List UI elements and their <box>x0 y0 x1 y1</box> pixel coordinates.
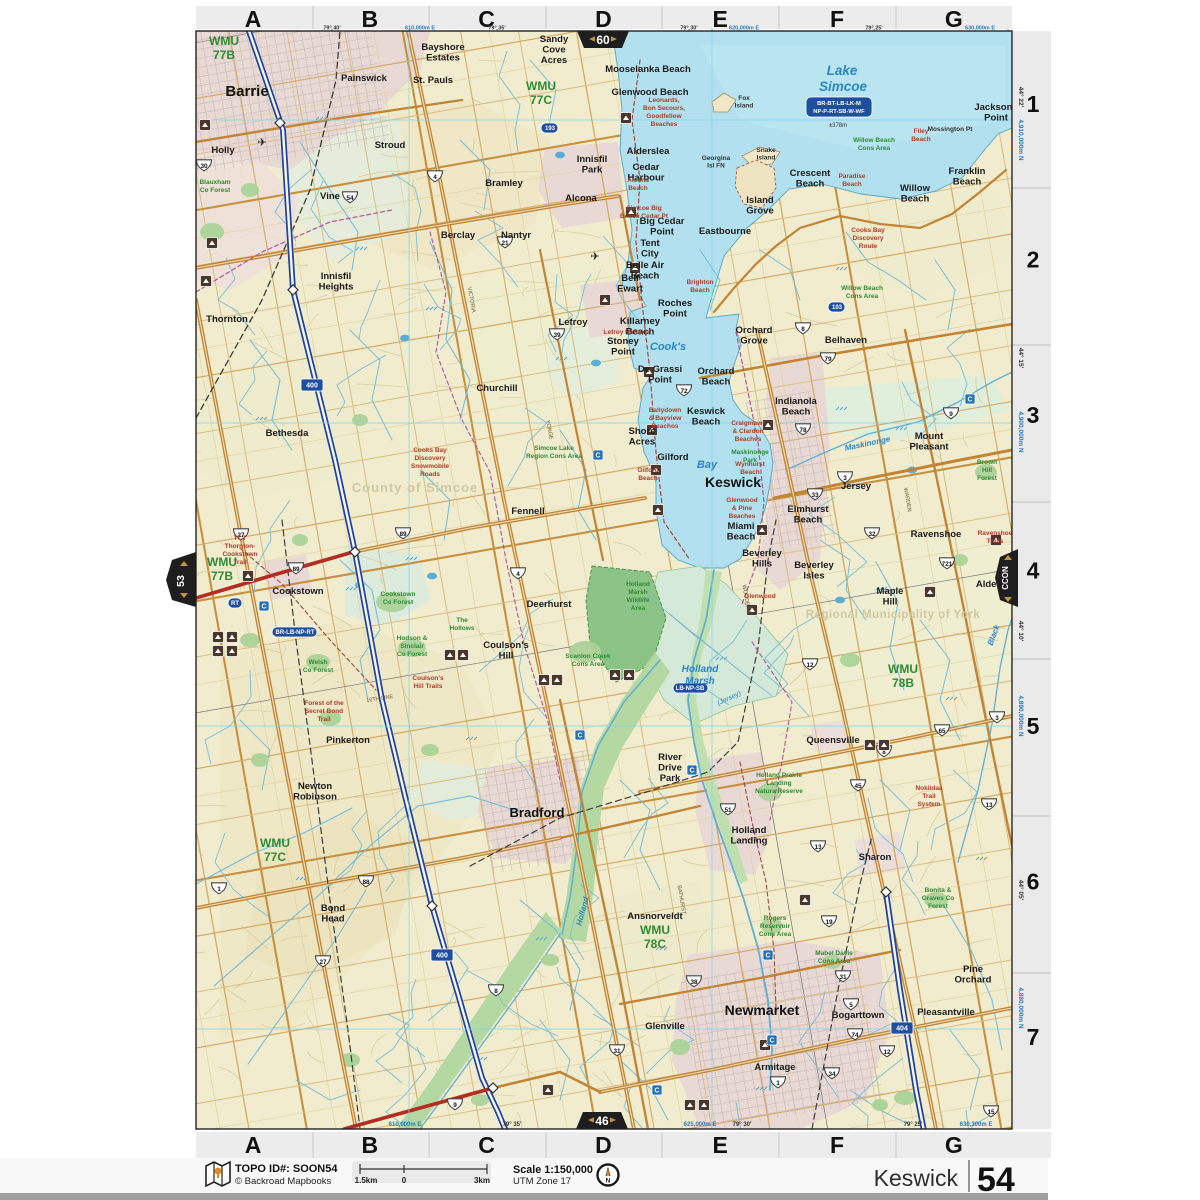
svg-text:C: C <box>769 1038 774 1045</box>
svg-text:1: 1 <box>217 886 221 893</box>
svg-text:Brown: Brown <box>977 459 997 466</box>
svg-text:78C: 78C <box>644 937 666 951</box>
svg-text:1: 1 <box>1027 91 1040 117</box>
svg-text:Pleasantville: Pleasantville <box>917 1007 975 1018</box>
svg-text:Co Forest: Co Forest <box>397 651 428 658</box>
svg-text:Region Cons Area: Region Cons Area <box>526 453 582 460</box>
svg-text:Mabel Davis: Mabel Davis <box>815 950 853 957</box>
svg-text:Acres: Acres <box>629 437 655 448</box>
svg-text:Drive: Drive <box>658 763 682 774</box>
svg-text:13: 13 <box>814 844 822 851</box>
svg-text:15: 15 <box>987 1109 995 1116</box>
svg-text:Cookstown: Cookstown <box>272 586 323 597</box>
svg-text:Isl FN: Isl FN <box>707 163 725 170</box>
svg-text:Filey: Filey <box>914 128 929 135</box>
svg-text:Beverley: Beverley <box>742 548 782 559</box>
svg-text:44° 05': 44° 05' <box>1017 880 1025 901</box>
svg-text:St. Pauls: St. Pauls <box>413 75 453 86</box>
svg-text:Sandy: Sandy <box>540 34 569 45</box>
svg-text:44° 10': 44° 10' <box>1017 621 1025 642</box>
svg-text:4: 4 <box>516 571 520 578</box>
svg-text:78B: 78B <box>892 676 914 690</box>
svg-text:Glenwood: Glenwood <box>726 497 757 504</box>
svg-text:Natura Reserve: Natura Reserve <box>755 788 803 795</box>
svg-text:Head: Head <box>321 914 344 925</box>
svg-text:Holland: Holland <box>626 581 650 588</box>
svg-text:Hill Trails: Hill Trails <box>414 683 443 690</box>
svg-text:Cove: Cove <box>542 45 565 56</box>
svg-text:Lefroy: Lefroy <box>558 317 588 328</box>
svg-text:721: 721 <box>942 561 953 568</box>
svg-text:Beach: Beach <box>740 469 760 476</box>
svg-text:WMU: WMU <box>209 34 239 48</box>
svg-text:Alderslea: Alderslea <box>627 146 670 157</box>
svg-text:Cons Area: Cons Area <box>818 958 851 965</box>
svg-text:Point: Point <box>663 309 688 320</box>
svg-text:Snake: Snake <box>756 147 776 154</box>
svg-text:Co Forest: Co Forest <box>200 187 231 194</box>
svg-text:Cons Area: Cons Area <box>572 661 605 668</box>
svg-text:Painswick: Painswick <box>341 73 388 84</box>
svg-text:2: 2 <box>1027 247 1040 273</box>
svg-text:Jacksons: Jacksons <box>974 102 1017 113</box>
svg-text:& Pine: & Pine <box>732 505 753 512</box>
svg-text:Nantyr: Nantyr <box>501 230 531 241</box>
svg-text:Hollows: Hollows <box>450 625 475 632</box>
svg-text:Beach: Beach <box>702 377 731 388</box>
svg-text:Beverley: Beverley <box>794 560 834 571</box>
svg-text:& Bayview: & Bayview <box>649 415 682 422</box>
svg-text:Beach: Beach <box>911 136 931 143</box>
svg-text:UTM Zone 17: UTM Zone 17 <box>513 1176 571 1187</box>
svg-text:Welsh: Welsh <box>308 659 327 666</box>
svg-text:74: 74 <box>851 1032 859 1039</box>
svg-text:31: 31 <box>613 1048 621 1055</box>
svg-text:Eastbourne: Eastbourne <box>699 226 751 237</box>
svg-text:Cons Area: Cons Area <box>858 145 891 152</box>
svg-text:Cedar: Cedar <box>633 162 660 173</box>
svg-text:Bon Secours,: Bon Secours, <box>643 105 685 112</box>
svg-text:Beach: Beach <box>901 194 930 205</box>
svg-text:Beaches: Beaches <box>651 121 678 128</box>
svg-text:Point: Point <box>611 347 636 358</box>
svg-text:4,900,000m N: 4,900,000m N <box>1017 411 1024 453</box>
svg-text:Keswick: Keswick <box>687 406 726 417</box>
svg-text:Holland: Holland <box>682 664 720 675</box>
svg-text:Queensville: Queensville <box>806 735 859 746</box>
svg-text:Coulson's: Coulson's <box>483 640 529 651</box>
svg-text:Bogarttown: Bogarttown <box>832 1010 885 1021</box>
svg-text:Co Forest: Co Forest <box>383 599 414 606</box>
svg-text:39: 39 <box>553 332 561 339</box>
svg-text:Sinclair: Sinclair <box>400 643 424 650</box>
svg-text:Willow Beach: Willow Beach <box>841 285 883 292</box>
svg-text:Discovery: Discovery <box>414 455 445 462</box>
svg-text:Hill: Hill <box>883 597 898 608</box>
svg-text:Mossington Pt: Mossington Pt <box>928 126 974 133</box>
svg-text:Keswick: Keswick <box>705 474 761 490</box>
svg-text:Coulson's: Coulson's <box>412 675 444 682</box>
svg-text:Leonards,: Leonards, <box>648 97 679 104</box>
svg-text:79° 30': 79° 30' <box>733 1122 752 1128</box>
svg-text:Beachos: Beachos <box>651 423 678 430</box>
svg-text:Estates: Estates <box>426 53 460 64</box>
svg-text:Bethesda: Bethesda <box>266 428 309 439</box>
svg-text:WMU: WMU <box>640 923 670 937</box>
svg-text:Forest: Forest <box>928 903 949 910</box>
svg-text:Acres: Acres <box>541 55 567 66</box>
svg-text:Killarney: Killarney <box>620 316 661 327</box>
svg-text:Churchill: Churchill <box>476 383 517 394</box>
svg-text:& Clardon: & Clardon <box>732 428 763 435</box>
svg-text:Gilford: Gilford <box>637 467 658 474</box>
svg-text:Beach: Beach <box>842 181 862 188</box>
svg-text:Cook's: Cook's <box>650 341 686 353</box>
svg-text:Island: Island <box>735 103 754 110</box>
svg-text:Stroud: Stroud <box>375 140 406 151</box>
svg-text:A: A <box>245 1132 262 1158</box>
svg-text:7: 7 <box>1027 1024 1040 1050</box>
svg-text:51: 51 <box>724 807 732 814</box>
svg-text:Fox: Fox <box>738 95 750 102</box>
svg-text:Jersey: Jersey <box>841 481 872 492</box>
svg-text:Forest: Forest <box>977 475 998 482</box>
svg-text:Isles: Isles <box>803 571 824 582</box>
svg-text:89: 89 <box>399 531 407 538</box>
svg-text:Park: Park <box>582 165 603 176</box>
svg-text:Nokiidaa: Nokiidaa <box>915 785 942 792</box>
svg-text:8: 8 <box>801 326 805 333</box>
svg-text:WMU: WMU <box>526 79 556 93</box>
svg-text:Park: Park <box>660 773 681 784</box>
svg-text:Franklin: Franklin <box>949 166 986 177</box>
svg-text:Thornton-: Thornton- <box>225 543 256 550</box>
svg-text:Pleasant: Pleasant <box>909 442 949 453</box>
svg-text:5: 5 <box>1027 713 1040 739</box>
svg-text:River: River <box>658 752 682 763</box>
svg-text:Innisfil: Innisfil <box>321 271 352 282</box>
svg-text:77C: 77C <box>264 850 286 864</box>
svg-text:4: 4 <box>433 174 437 181</box>
svg-text:Hill: Hill <box>982 467 992 474</box>
svg-text:3km: 3km <box>474 1176 490 1185</box>
svg-text:Holland: Holland <box>732 825 767 836</box>
svg-text:Graves Co: Graves Co <box>922 895 955 902</box>
svg-text:A: A <box>245 6 262 32</box>
svg-text:Bramley: Bramley <box>485 178 523 189</box>
svg-text:13: 13 <box>985 802 993 809</box>
svg-text:±378m: ±378m <box>829 123 847 129</box>
svg-text:Cons Area: Cons Area <box>759 931 792 938</box>
svg-text:Tent: Tent <box>640 238 660 249</box>
svg-text:TCT: TCT <box>234 535 247 542</box>
svg-text:Cookstown: Cookstown <box>222 551 257 558</box>
svg-text:Lefroy Harbour: Lefroy Harbour <box>604 329 651 336</box>
svg-text:610,000m E: 610,000m E <box>389 1122 422 1128</box>
svg-text:1.5km: 1.5km <box>355 1176 378 1185</box>
svg-text:54: 54 <box>346 195 354 202</box>
svg-text:Hills: Hills <box>752 559 772 570</box>
svg-text:65: 65 <box>938 728 946 735</box>
svg-text:Alcona: Alcona <box>627 177 649 184</box>
svg-text:Beach Cedar Pt: Beach Cedar Pt <box>620 213 669 220</box>
svg-text:Island: Island <box>746 195 774 206</box>
svg-text:BR-BT-LB-LK-M: BR-BT-LB-LK-M <box>817 101 861 107</box>
svg-text:78: 78 <box>799 427 807 434</box>
svg-text:4,880,000m N: 4,880,000m N <box>1017 987 1024 1029</box>
svg-text:Newmarket: Newmarket <box>725 1002 800 1018</box>
svg-text:Heights: Heights <box>319 282 354 293</box>
svg-text:Innisfil: Innisfil <box>577 154 608 165</box>
svg-text:G: G <box>945 1132 963 1158</box>
svg-text:BR-LB-NP-RT: BR-LB-NP-RT <box>276 630 315 636</box>
svg-text:Lake: Lake <box>827 63 858 78</box>
svg-text:Deerhurst: Deerhurst <box>527 599 573 610</box>
svg-text:Beach: Beach <box>782 407 811 418</box>
svg-text:C: C <box>261 604 266 611</box>
svg-text:Ravenshoe: Ravenshoe <box>978 530 1013 537</box>
svg-text:Mount: Mount <box>915 431 944 442</box>
svg-text:Newton: Newton <box>298 781 333 792</box>
svg-text:F: F <box>830 1132 844 1158</box>
svg-text:193: 193 <box>545 126 556 132</box>
svg-text:C: C <box>654 1088 659 1095</box>
svg-text:Brighton: Brighton <box>686 279 713 286</box>
svg-text:WMU: WMU <box>888 662 918 676</box>
svg-text:Discovery: Discovery <box>852 235 883 242</box>
svg-text:Forest of the: Forest of the <box>304 700 344 707</box>
svg-text:6: 6 <box>1027 869 1040 895</box>
svg-text:Orchard: Orchard <box>736 325 773 336</box>
svg-text:B: B <box>361 1132 378 1158</box>
svg-text:WMU: WMU <box>260 836 290 850</box>
svg-text:0: 0 <box>402 1176 407 1185</box>
svg-text:32: 32 <box>868 531 876 538</box>
svg-text:Reservoir: Reservoir <box>760 923 790 930</box>
svg-text:4: 4 <box>1027 558 1040 584</box>
svg-text:Cooks Bay: Cooks Bay <box>413 447 447 454</box>
svg-text:Trail: Trail <box>233 559 247 566</box>
svg-text:Bell: Bell <box>621 273 638 284</box>
svg-text:© Backroad Mapbooks: © Backroad Mapbooks <box>235 1176 331 1187</box>
svg-text:88: 88 <box>362 879 370 886</box>
svg-text:✈: ✈ <box>257 137 266 149</box>
svg-text:77B: 77B <box>211 569 233 583</box>
svg-text:Regional Municipality of York: Regional Municipality of York <box>806 609 981 621</box>
svg-text:Barrie: Barrie <box>225 83 268 100</box>
svg-text:Co Forest: Co Forest <box>303 667 334 674</box>
svg-text:Point: Point <box>984 113 1009 124</box>
svg-text:D: D <box>595 1132 612 1158</box>
svg-text:34: 34 <box>828 1071 836 1078</box>
svg-text:33: 33 <box>811 492 819 499</box>
svg-text:79° 35': 79° 35' <box>503 1122 522 1128</box>
svg-text:B: B <box>361 6 378 32</box>
svg-text:Sharon: Sharon <box>859 852 892 863</box>
svg-text:9: 9 <box>453 1102 457 1109</box>
svg-text:Point: Point <box>650 227 675 238</box>
svg-text:3: 3 <box>995 715 999 722</box>
svg-text:Paradise: Paradise <box>838 173 865 180</box>
svg-text:Pine: Pine <box>963 964 983 975</box>
svg-text:Trail: Trail <box>317 716 331 723</box>
svg-text:Elmhurst: Elmhurst <box>787 504 829 515</box>
svg-text:Point: Point <box>648 375 673 386</box>
svg-text:77B: 77B <box>213 48 235 62</box>
svg-text:625,000m E: 625,000m E <box>684 1122 717 1128</box>
svg-text:77C: 77C <box>530 93 552 107</box>
svg-text:Route: Route <box>859 243 878 250</box>
svg-text:3: 3 <box>1027 402 1040 428</box>
svg-text:RT: RT <box>231 601 239 607</box>
svg-text:The: The <box>456 617 468 624</box>
svg-text:Cooks Bay: Cooks Bay <box>851 227 885 234</box>
svg-text:Ballydown: Ballydown <box>649 407 682 414</box>
svg-text:C: C <box>577 733 582 740</box>
svg-text:G: G <box>945 6 963 32</box>
svg-text:Maskinonge: Maskinonge <box>731 449 769 456</box>
svg-text:Holland Prairie: Holland Prairie <box>756 772 802 779</box>
svg-text:Trail: Trail <box>922 793 936 800</box>
svg-text:Blauxham: Blauxham <box>199 179 230 186</box>
svg-text:4,890,000m N: 4,890,000m N <box>1017 695 1024 737</box>
svg-text:CCON: CCON <box>1001 566 1010 590</box>
svg-text:D: D <box>595 6 612 32</box>
svg-text:Park: Park <box>743 457 757 464</box>
svg-text:F: F <box>830 6 844 32</box>
svg-text:Cons Area: Cons Area <box>846 293 879 300</box>
svg-text:Marsh: Marsh <box>685 676 714 687</box>
svg-text:Simcoe: Simcoe <box>819 79 868 94</box>
svg-text:45: 45 <box>854 783 862 790</box>
svg-text:72: 72 <box>680 388 688 395</box>
svg-text:Bonita &: Bonita & <box>925 887 952 894</box>
svg-text:Beaches: Beaches <box>735 436 762 443</box>
svg-text:C: C <box>478 1132 495 1158</box>
svg-text:Landing: Landing <box>731 836 768 847</box>
svg-text:Trails: Trails <box>987 538 1004 545</box>
svg-text:Pinkerton: Pinkerton <box>326 735 370 746</box>
svg-text:79° 25': 79° 25' <box>904 1122 923 1128</box>
svg-text:Scanlon Creek: Scanlon Creek <box>565 653 611 660</box>
svg-text:Belhaven: Belhaven <box>825 335 867 346</box>
svg-text:Area: Area <box>631 605 646 612</box>
svg-text:Simcoe Big: Simcoe Big <box>626 205 661 212</box>
svg-text:Simcoe Lake: Simcoe Lake <box>534 445 574 452</box>
svg-text:Secret Bond: Secret Bond <box>305 708 343 715</box>
svg-text:County of Simcoe: County of Simcoe <box>352 480 479 495</box>
svg-text:C: C <box>967 397 972 404</box>
svg-text:Bond: Bond <box>321 903 345 914</box>
svg-text:Armitage: Armitage <box>754 1062 795 1073</box>
svg-text:400: 400 <box>436 953 448 960</box>
svg-text:Mooselanka Beach: Mooselanka Beach <box>605 64 691 75</box>
svg-text:Ewart: Ewart <box>617 284 644 295</box>
svg-text:Indianola: Indianola <box>775 396 817 407</box>
svg-text:Orchard: Orchard <box>955 975 992 986</box>
svg-text:System: System <box>917 801 940 808</box>
svg-text:5: 5 <box>849 1002 853 1009</box>
svg-text:Roads: Roads <box>420 471 440 478</box>
svg-text:630,300m E: 630,300m E <box>960 1122 993 1128</box>
svg-text:Stoney: Stoney <box>607 336 639 347</box>
svg-text:Alcona: Alcona <box>565 193 597 204</box>
svg-text:Beaches: Beaches <box>729 513 756 520</box>
svg-text:Beach: Beach <box>796 179 825 190</box>
svg-text:44° 15': 44° 15' <box>1017 348 1025 369</box>
svg-text:City: City <box>641 249 660 260</box>
svg-text:Craigmawr: Craigmawr <box>731 420 765 427</box>
svg-text:Willow Beach: Willow Beach <box>853 137 895 144</box>
svg-text:Fennell: Fennell <box>511 506 544 517</box>
svg-text:C: C <box>765 953 770 960</box>
svg-text:Georgina: Georgina <box>702 155 731 162</box>
svg-text:Goodfellow: Goodfellow <box>646 113 682 120</box>
svg-text:Snowmobile: Snowmobile <box>411 463 450 470</box>
svg-text:N: N <box>606 1178 611 1185</box>
svg-text:4,910,000m N: 4,910,000m N <box>1017 119 1024 161</box>
svg-text:31: 31 <box>839 974 847 981</box>
svg-text:400: 400 <box>306 383 318 390</box>
svg-text:Keswick: Keswick <box>874 1165 959 1191</box>
svg-text:Willow: Willow <box>900 183 931 194</box>
svg-text:E: E <box>713 6 728 32</box>
svg-text:Beach: Beach <box>628 185 648 192</box>
svg-text:✈: ✈ <box>590 251 599 263</box>
svg-text:89: 89 <box>292 566 300 573</box>
svg-text:Landing: Landing <box>766 780 791 787</box>
svg-text:1: 1 <box>776 1080 780 1087</box>
svg-text:Marsh: Marsh <box>628 589 647 596</box>
svg-text:Wildlife: Wildlife <box>626 597 649 604</box>
svg-text:Bradford: Bradford <box>510 805 565 820</box>
svg-text:Robinson: Robinson <box>293 792 337 803</box>
svg-text:38: 38 <box>690 979 698 986</box>
svg-text:Beach: Beach <box>638 475 658 482</box>
svg-text:Vine: Vine <box>320 191 340 202</box>
svg-text:9: 9 <box>949 411 953 418</box>
svg-text:Gilford: Gilford <box>657 452 688 463</box>
svg-text:Ansnorveldt: Ansnorveldt <box>627 911 683 922</box>
svg-text:Beach: Beach <box>727 532 756 543</box>
svg-text:Thornton: Thornton <box>206 314 248 325</box>
svg-text:Scale 1:150,000: Scale 1:150,000 <box>513 1164 593 1176</box>
svg-text:Glenville: Glenville <box>645 1021 685 1032</box>
svg-text:C: C <box>595 453 600 460</box>
svg-text:Bayshore: Bayshore <box>421 42 464 53</box>
svg-text:46: 46 <box>595 1114 609 1128</box>
svg-text:Roches: Roches <box>658 298 692 309</box>
svg-text:Cookstown: Cookstown <box>380 591 415 598</box>
svg-text:Island: Island <box>757 155 776 162</box>
svg-text:27: 27 <box>319 959 327 966</box>
svg-text:TOPO ID#: SOON54: TOPO ID#: SOON54 <box>235 1163 338 1175</box>
svg-text:C: C <box>689 768 694 775</box>
svg-text:8: 8 <box>494 988 498 995</box>
svg-text:30: 30 <box>200 163 208 170</box>
svg-text:Grove: Grove <box>746 206 773 217</box>
svg-text:Grove: Grove <box>740 336 767 347</box>
svg-text:Beach: Beach <box>692 417 721 428</box>
svg-text:Berclay: Berclay <box>441 230 476 241</box>
svg-text:Beach: Beach <box>794 515 823 526</box>
svg-text:Holly: Holly <box>211 145 235 156</box>
svg-text:Bay: Bay <box>697 459 718 471</box>
svg-text:53: 53 <box>175 575 187 587</box>
svg-text:Hill: Hill <box>499 651 514 662</box>
svg-text:De Grassi: De Grassi <box>638 364 682 375</box>
svg-text:Maple: Maple <box>877 586 904 597</box>
